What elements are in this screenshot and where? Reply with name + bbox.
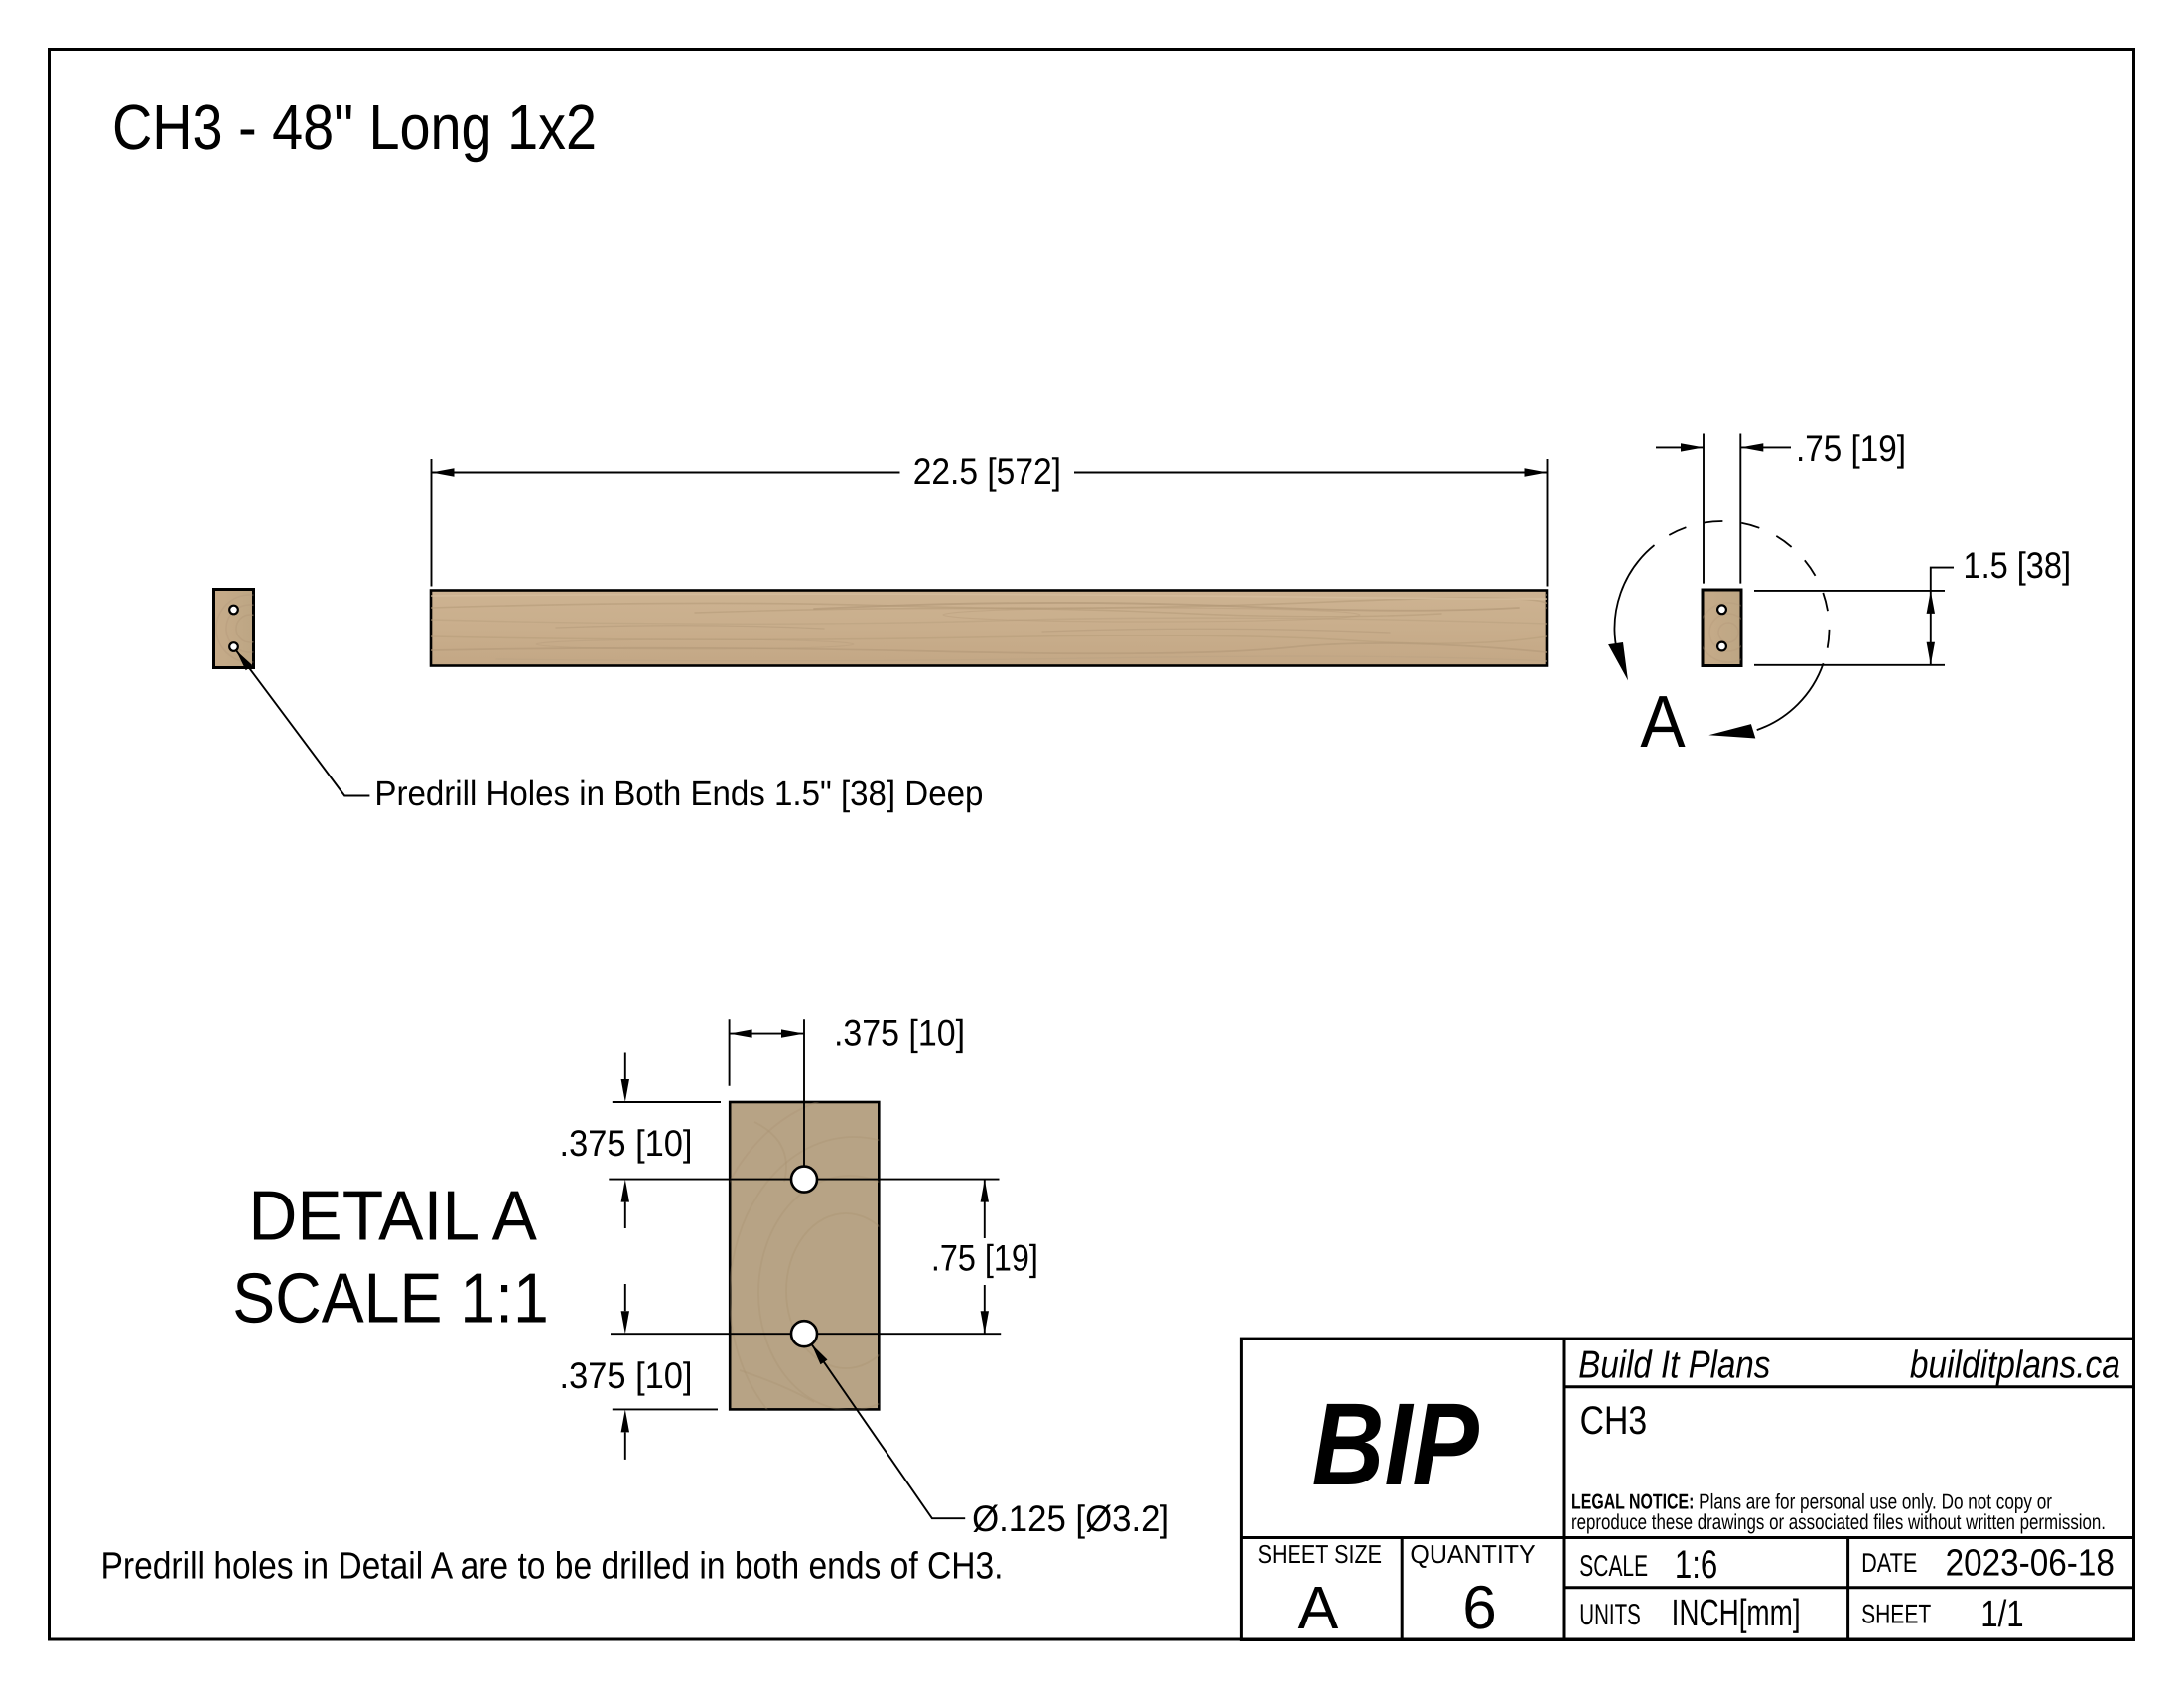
svg-text:1/1: 1/1 [1980, 1594, 2023, 1635]
svg-text:A: A [1640, 680, 1686, 763]
svg-text:Predrill holes in Detail A are: Predrill holes in Detail A are to be dri… [101, 1546, 1004, 1588]
svg-text:SCALE 1:1: SCALE 1:1 [232, 1260, 549, 1339]
svg-text:BIP: BIP [1312, 1379, 1479, 1510]
svg-text:SCALE: SCALE [1579, 1550, 1648, 1583]
svg-text:CH3: CH3 [1580, 1399, 1648, 1443]
svg-text:1:6: 1:6 [1675, 1543, 1717, 1587]
svg-text:.75 [19]: .75 [19] [1796, 428, 1906, 469]
svg-text:builditplans.ca: builditplans.ca [1910, 1343, 2120, 1386]
svg-text:22.5 [572]: 22.5 [572] [913, 451, 1061, 492]
svg-text:CH3 - 48" Long 1x2: CH3 - 48" Long 1x2 [112, 91, 597, 163]
svg-text:1.5 [38]: 1.5 [38] [1964, 545, 2072, 586]
svg-text:UNITS: UNITS [1579, 1599, 1641, 1631]
svg-text:.75 [19]: .75 [19] [931, 1237, 1038, 1278]
svg-text:.375 [10]: .375 [10] [560, 1355, 693, 1396]
svg-text:Ø.125 [Ø3.2]: Ø.125 [Ø3.2] [972, 1498, 1169, 1539]
svg-text:SHEET: SHEET [1861, 1600, 1931, 1629]
svg-text:SHEET SIZE: SHEET SIZE [1258, 1539, 1382, 1569]
svg-text:2023-06-18: 2023-06-18 [1946, 1542, 2115, 1584]
svg-text:.375 [10]: .375 [10] [834, 1013, 965, 1054]
svg-text:Build It Plans: Build It Plans [1578, 1343, 1770, 1386]
svg-text:A: A [1298, 1574, 1339, 1641]
svg-text:reproduce these drawings or as: reproduce these drawings or associated f… [1571, 1510, 2106, 1534]
svg-text:QUANTITY: QUANTITY [1410, 1539, 1535, 1569]
svg-text:Predrill Holes in Both Ends 1.: Predrill Holes in Both Ends 1.5" [38] De… [374, 775, 983, 813]
svg-text:.375 [10]: .375 [10] [560, 1123, 693, 1164]
svg-text:DETAIL A: DETAIL A [248, 1177, 537, 1255]
svg-text:DATE: DATE [1861, 1548, 1917, 1578]
svg-text:INCH[mm]: INCH[mm] [1672, 1593, 1801, 1634]
svg-text:6: 6 [1462, 1574, 1496, 1642]
